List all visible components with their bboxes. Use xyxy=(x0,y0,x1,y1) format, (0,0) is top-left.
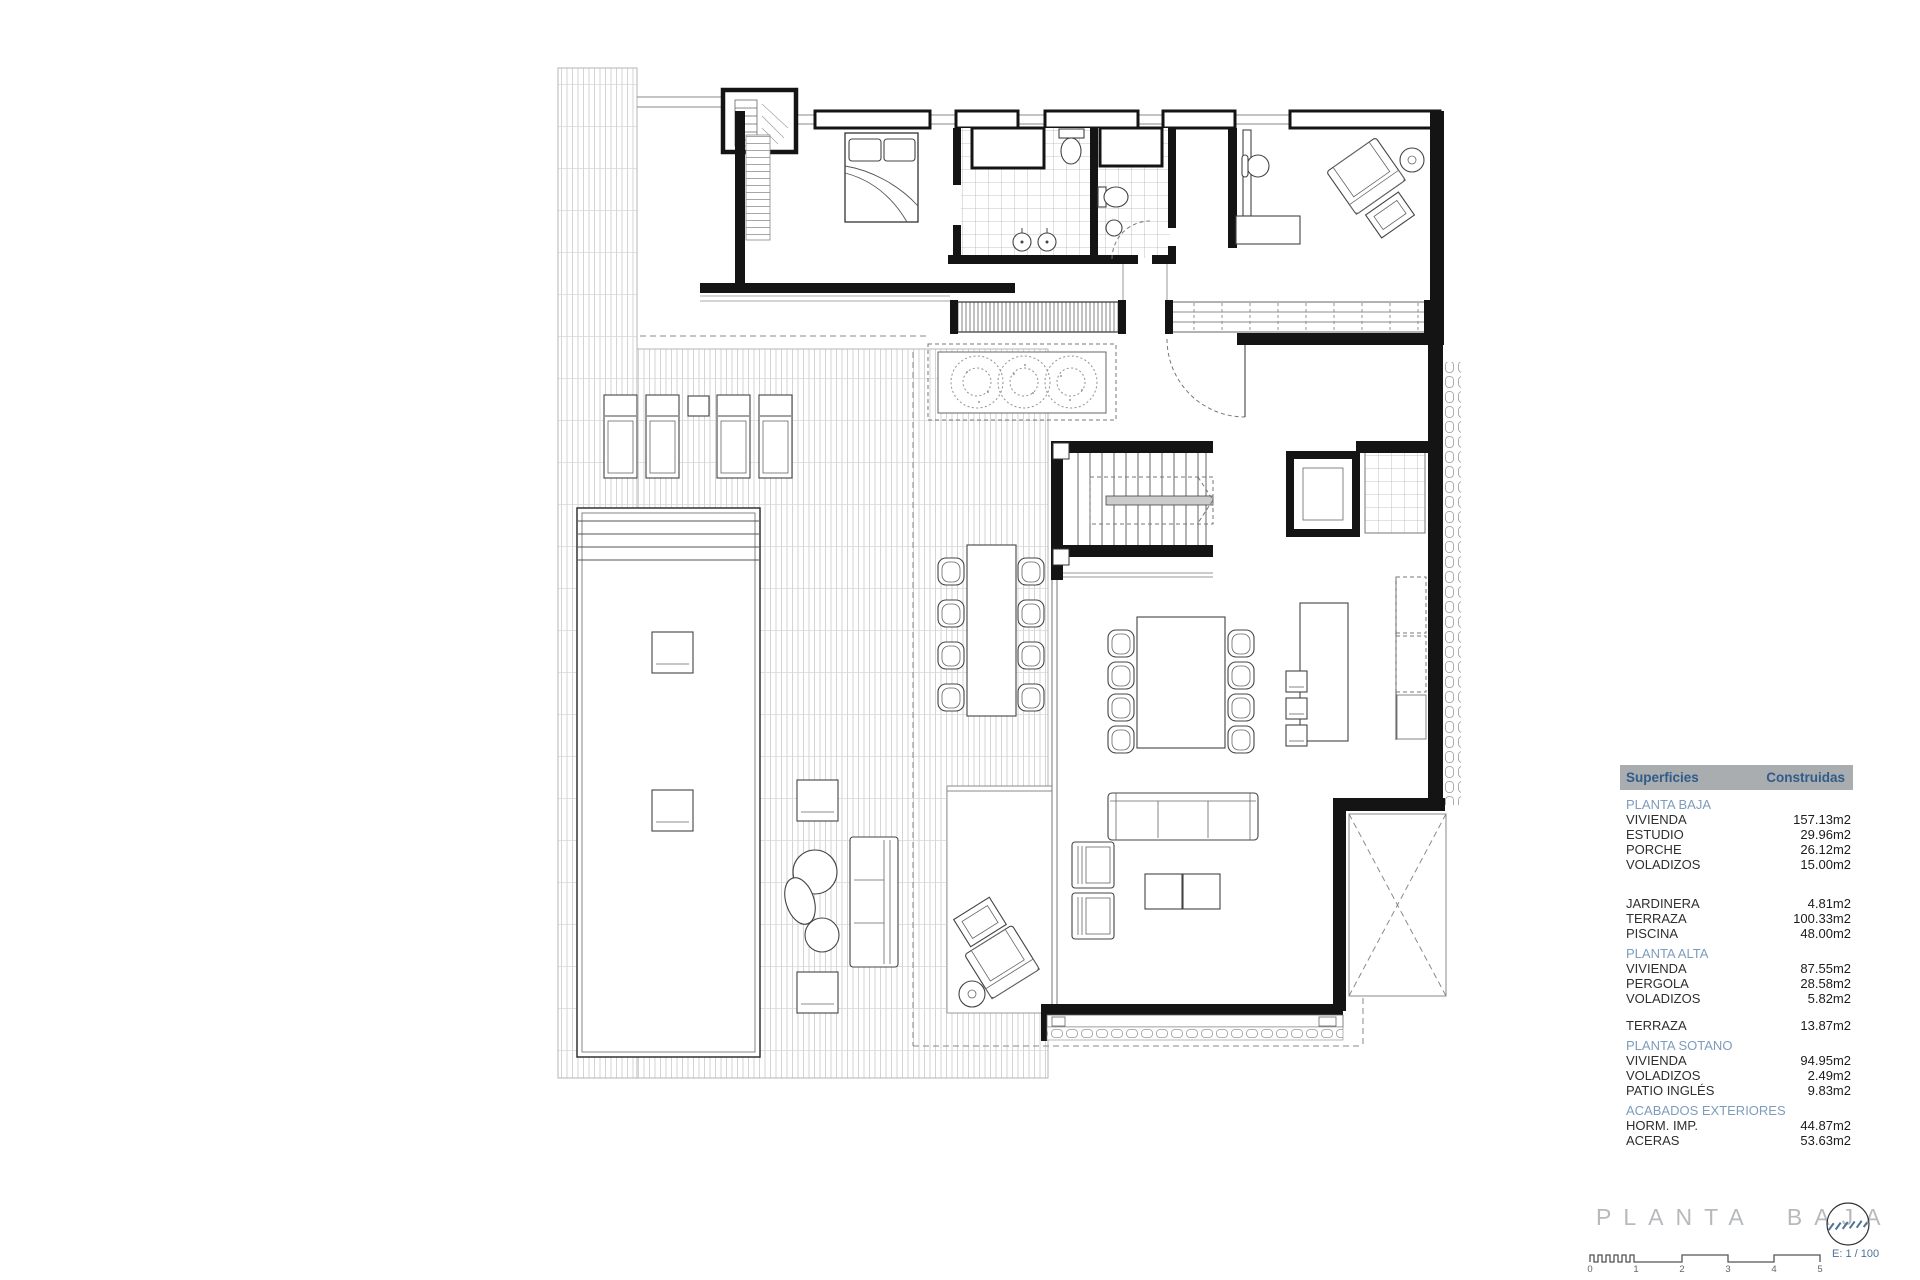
entry-door xyxy=(1123,264,1245,417)
toilet xyxy=(1098,187,1128,207)
pool xyxy=(577,508,760,1057)
row-value: 9.83m2 xyxy=(1808,1083,1851,1098)
row-label: VIVIENDA xyxy=(1626,961,1687,976)
row-label: PATIO INGLÉS xyxy=(1626,1083,1714,1098)
table-row: ACERAS 53.63m2 xyxy=(1626,1133,1851,1148)
outdoor-sofa xyxy=(850,837,898,967)
indoor-dining-set xyxy=(1108,617,1254,753)
table-row: ESTUDIO 29.96m2 xyxy=(1626,827,1851,842)
scale-tick: 5 xyxy=(1817,1264,1822,1275)
row-value: 13.87m2 xyxy=(1800,1018,1851,1033)
row-value: 53.63m2 xyxy=(1800,1133,1851,1148)
row-label: HORM. IMP. xyxy=(1626,1118,1698,1133)
scale-tick: 1 xyxy=(1633,1264,1638,1275)
bed xyxy=(845,133,918,222)
scale-label: E: 1 / 100 xyxy=(1832,1248,1879,1260)
table-row: PATIO INGLÉS 9.83m2 xyxy=(1626,1083,1851,1098)
scale-tick: 4 xyxy=(1771,1264,1776,1275)
living-room xyxy=(1072,793,1258,939)
areas-table-col-surfaces: Superficies xyxy=(1626,770,1699,785)
areas-table-rows: PLANTA BAJA VIVIENDA 157.13m2 ESTUDIO 29… xyxy=(1620,797,1853,1148)
row-value: 28.58m2 xyxy=(1800,976,1851,991)
tiled-shaft xyxy=(1365,451,1425,533)
row-value: 94.95m2 xyxy=(1800,1053,1851,1068)
row-label: PLANTA SOTANO xyxy=(1626,1038,1732,1053)
stairs xyxy=(1051,441,1213,580)
row-value: 5.82m2 xyxy=(1808,991,1851,1006)
row-value: 44.87m2 xyxy=(1800,1118,1851,1133)
scale-tick: 2 xyxy=(1679,1264,1684,1275)
row-label: VOLADIZOS xyxy=(1626,991,1700,1006)
row-label: TERRAZA xyxy=(1626,911,1687,926)
table-row: VOLADIZOS 5.82m2 xyxy=(1626,991,1851,1006)
armchair xyxy=(1072,893,1114,939)
row-value: 29.96m2 xyxy=(1800,827,1851,842)
row-value: 100.33m2 xyxy=(1793,911,1851,926)
row-value: 26.12m2 xyxy=(1800,842,1851,857)
side-table xyxy=(1400,148,1424,172)
table-row: HORM. IMP. 44.87m2 xyxy=(1626,1118,1851,1133)
kitchen xyxy=(1286,577,1426,746)
void-x-box xyxy=(1349,814,1446,996)
second-bathroom xyxy=(1098,128,1176,264)
north-arrow-icon xyxy=(1820,1196,1876,1252)
row-value: 15.00m2 xyxy=(1800,857,1851,872)
row-label: ESTUDIO xyxy=(1626,827,1684,842)
table-row: PISCINA 48.00m2 xyxy=(1626,926,1851,941)
row-label: VIVIENDA xyxy=(1626,1053,1687,1068)
row-label: VOLADIZOS xyxy=(1626,857,1700,872)
table-row xyxy=(1626,1006,1851,1018)
table-row: TERRAZA 100.33m2 xyxy=(1626,911,1851,926)
armchair xyxy=(1072,842,1114,888)
elevator xyxy=(1290,455,1356,533)
row-value: 157.13m2 xyxy=(1793,812,1851,827)
row-label: ACERAS xyxy=(1626,1133,1679,1148)
scale-tick: 0 xyxy=(1587,1264,1592,1275)
row-label: PERGOLA xyxy=(1626,976,1689,991)
study-window-band xyxy=(1165,300,1432,334)
table-row: PLANTA ALTA xyxy=(1626,946,1851,961)
floor-plan-page: { "title_block": { "title": "PLANTA BAJA… xyxy=(0,0,1920,1280)
bottom-terrace-band xyxy=(1041,1004,1343,1041)
office-chair xyxy=(1242,155,1269,177)
row-value: 4.81m2 xyxy=(1808,896,1851,911)
row-label: ACABADOS EXTERIORES xyxy=(1626,1103,1786,1118)
table-row: VIVIENDA 87.55m2 xyxy=(1626,961,1851,976)
planter xyxy=(928,344,1116,420)
table-row: VIVIENDA 157.13m2 xyxy=(1626,812,1851,827)
scale-bar: 0 1 2 3 4 5 E: 1 / 100 xyxy=(1588,1246,1888,1280)
master-bathroom xyxy=(948,128,1098,264)
row-label: JARDINERA xyxy=(1626,896,1700,911)
table-row: PLANTA BAJA xyxy=(1626,797,1851,812)
row-label: PLANTA BAJA xyxy=(1626,797,1711,812)
row-label: PORCHE xyxy=(1626,842,1682,857)
table-row: VOLADIZOS 2.49m2 xyxy=(1626,1068,1851,1083)
table-row: PORCHE 26.12m2 xyxy=(1626,842,1851,857)
table-row xyxy=(1626,872,1851,896)
desk xyxy=(1236,130,1300,244)
areas-table-header: Superficies Construidas xyxy=(1620,765,1853,790)
hall-wall xyxy=(1356,441,1432,453)
row-label: PLANTA ALTA xyxy=(1626,946,1708,961)
row-value: 87.55m2 xyxy=(1800,961,1851,976)
table-row: VIVIENDA 94.95m2 xyxy=(1626,1053,1851,1068)
sink xyxy=(1106,220,1122,236)
row-label: PISCINA xyxy=(1626,926,1678,941)
row-label: TERRAZA xyxy=(1626,1018,1687,1033)
coffee-table xyxy=(1145,874,1220,909)
row-label: VOLADIZOS xyxy=(1626,1068,1700,1083)
areas-table-col-built: Construidas xyxy=(1766,770,1845,785)
table-row: ACABADOS EXTERIORES xyxy=(1626,1103,1851,1118)
table-row: PERGOLA 28.58m2 xyxy=(1626,976,1851,991)
row-value: 2.49m2 xyxy=(1808,1068,1851,1083)
areas-table: Superficies Construidas PLANTA BAJA VIVI… xyxy=(1620,765,1853,1148)
porch xyxy=(947,786,1052,1013)
sofa xyxy=(1108,793,1258,840)
row-label: VIVIENDA xyxy=(1626,812,1687,827)
table-row: VOLADIZOS 15.00m2 xyxy=(1626,857,1851,872)
row-value: 48.00m2 xyxy=(1800,926,1851,941)
table-row: PLANTA SOTANO xyxy=(1626,1038,1851,1053)
glass-wall xyxy=(1052,557,1057,1004)
scale-tick: 3 xyxy=(1725,1264,1730,1275)
table-row: JARDINERA 4.81m2 xyxy=(1626,896,1851,911)
table-row: TERRAZA 13.87m2 xyxy=(1626,1018,1851,1033)
railing-band xyxy=(950,300,1126,334)
